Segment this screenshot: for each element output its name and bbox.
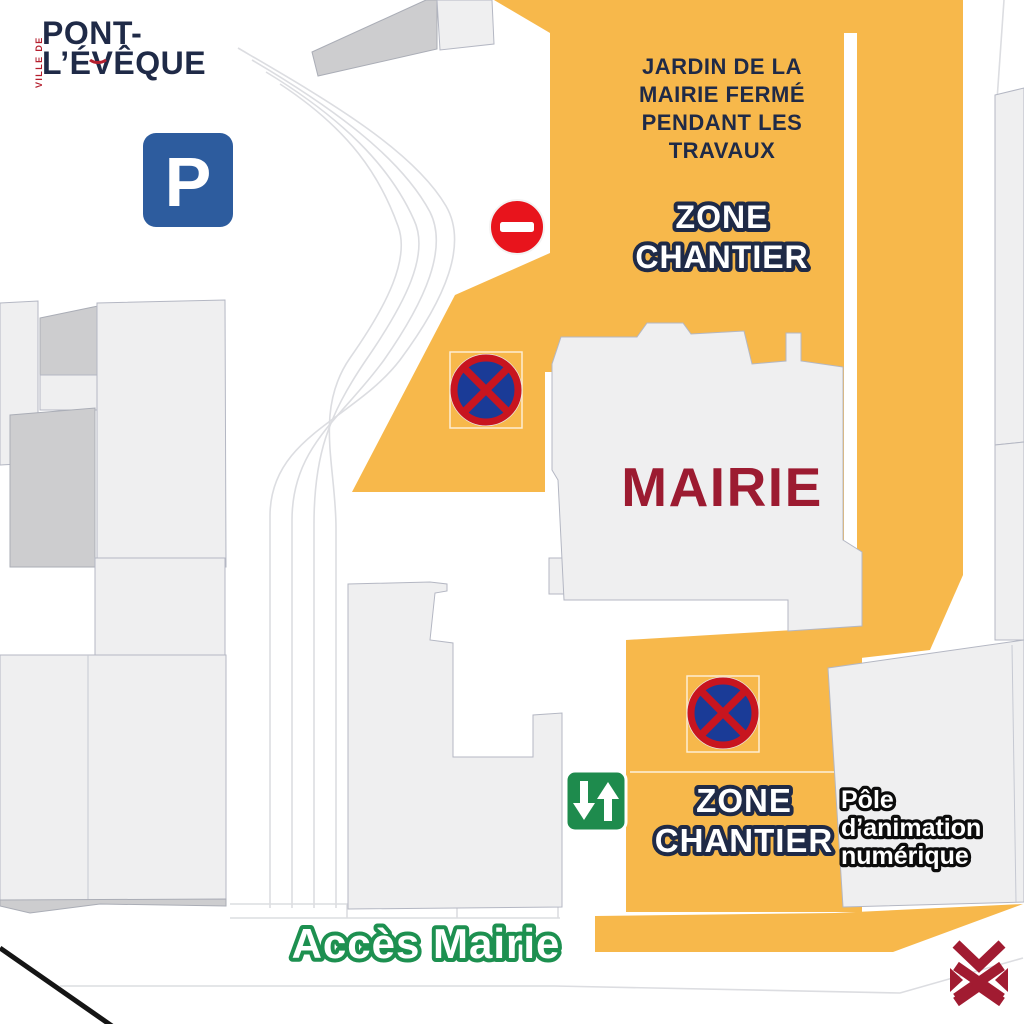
- garden-notice-line: MAIRIE FERMÉ: [639, 82, 805, 107]
- zone-bottom-area: [626, 626, 862, 912]
- zone-label-line: ZONE: [696, 782, 792, 819]
- zone-label-line: CHANTIER: [655, 822, 834, 859]
- pole-label-line: numérique: [841, 842, 969, 870]
- parking-icon: P: [143, 133, 233, 227]
- parking-letter: P: [165, 143, 212, 221]
- building: [40, 375, 98, 410]
- map-canvas: P JARDIN DE LA MAIRIE FERMÉ PENDANT LES …: [0, 0, 1024, 1024]
- map-poster: P JARDIN DE LA MAIRIE FERMÉ PENDANT LES …: [0, 0, 1024, 1024]
- two-way-traffic-icon: [566, 771, 626, 831]
- building: [40, 306, 98, 375]
- building: [995, 442, 1024, 640]
- logo-accent: [86, 46, 110, 64]
- zone-label-line: ZONE: [676, 199, 769, 235]
- pole-label-line: d’animation: [841, 814, 981, 842]
- garden-notice-line: TRAVAUX: [669, 138, 776, 163]
- garden-notice-line: JARDIN DE LA: [642, 54, 802, 79]
- building: [437, 0, 494, 50]
- logo-wordmark: PONT- L’ÉVÊQUE: [42, 18, 206, 78]
- building: [95, 558, 225, 655]
- building: [995, 88, 1024, 445]
- building: [97, 300, 226, 567]
- city-logo: VILLE DE PONT- L’ÉVÊQUE: [18, 16, 228, 96]
- mairie-label: MAIRIE: [621, 456, 823, 518]
- garden-path-stripe: [844, 33, 857, 618]
- building: [0, 655, 226, 900]
- zone-label-line: CHANTIER: [635, 239, 808, 275]
- logo-line2: L’ÉVÊQUE: [42, 48, 206, 78]
- garden-notice-line: PENDANT LES: [642, 110, 803, 135]
- acces-mairie-label: Accès Mairie: [292, 920, 561, 967]
- no-entry-icon: [490, 200, 544, 254]
- pole-label-line: Pôle: [841, 786, 894, 814]
- building: [10, 408, 95, 567]
- logo-line1: PONT-: [42, 18, 206, 48]
